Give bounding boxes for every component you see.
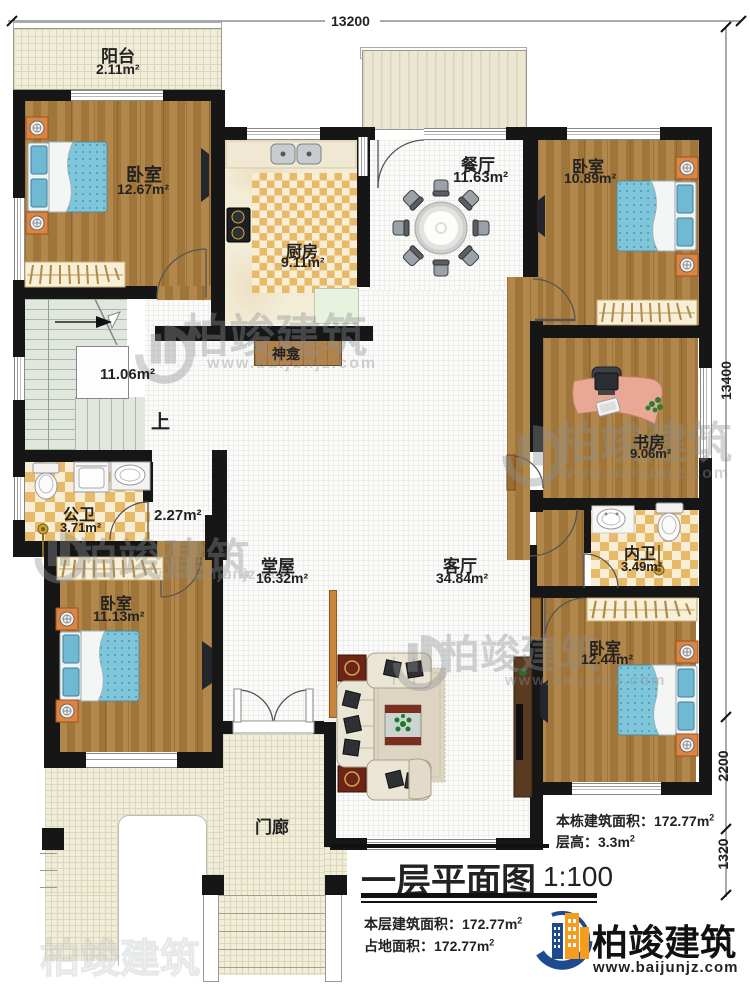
- svg-text:www.baijunjz.com: www.baijunjz.com: [504, 672, 666, 689]
- svg-text:柏竣建筑: 柏竣建筑: [40, 937, 200, 981]
- svg-text:www.baijunjz.com: www.baijunjz.com: [559, 465, 730, 482]
- svg-text:www.baijunjz.com: www.baijunjz.com: [592, 959, 738, 976]
- svg-text:柏竣建筑: 柏竣建筑: [592, 922, 736, 963]
- svg-text:柏竣建筑: 柏竣建筑: [440, 633, 600, 677]
